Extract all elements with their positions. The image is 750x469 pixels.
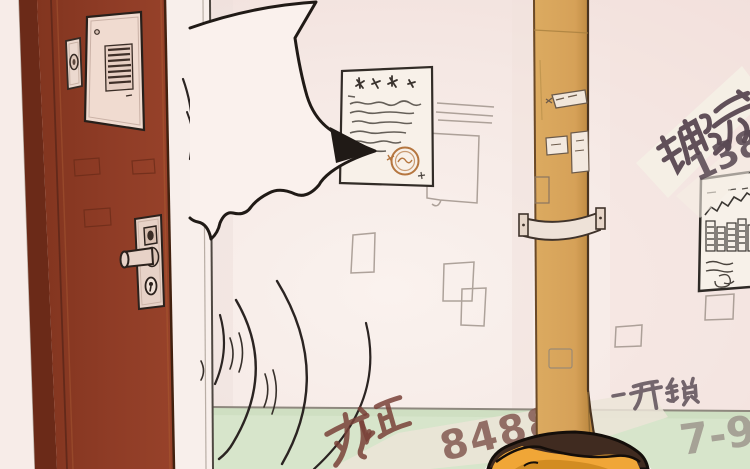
notice-poster [340, 67, 433, 186]
panel-screw [95, 30, 100, 35]
graffiti-locksmith-hours: 7-9 [677, 406, 750, 465]
keyhole [146, 278, 157, 295]
scene-drawing: 138 [0, 0, 750, 469]
door-assembly [0, 0, 213, 469]
comic-panel: 搬家 办证 开锁 [0, 0, 750, 469]
vent-grille [105, 44, 133, 91]
doorbell-button [66, 38, 82, 89]
intercom-panel [85, 12, 144, 130]
